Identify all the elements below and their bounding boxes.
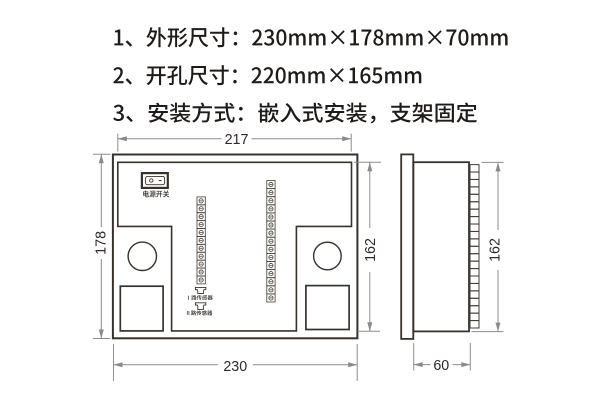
- svg-text:217: 217: [225, 132, 249, 148]
- svg-text:162: 162: [488, 238, 504, 262]
- svg-text:230: 230: [223, 359, 247, 375]
- svg-text:178: 178: [93, 231, 109, 255]
- svg-text:60: 60: [433, 358, 449, 374]
- svg-text:162: 162: [363, 238, 379, 262]
